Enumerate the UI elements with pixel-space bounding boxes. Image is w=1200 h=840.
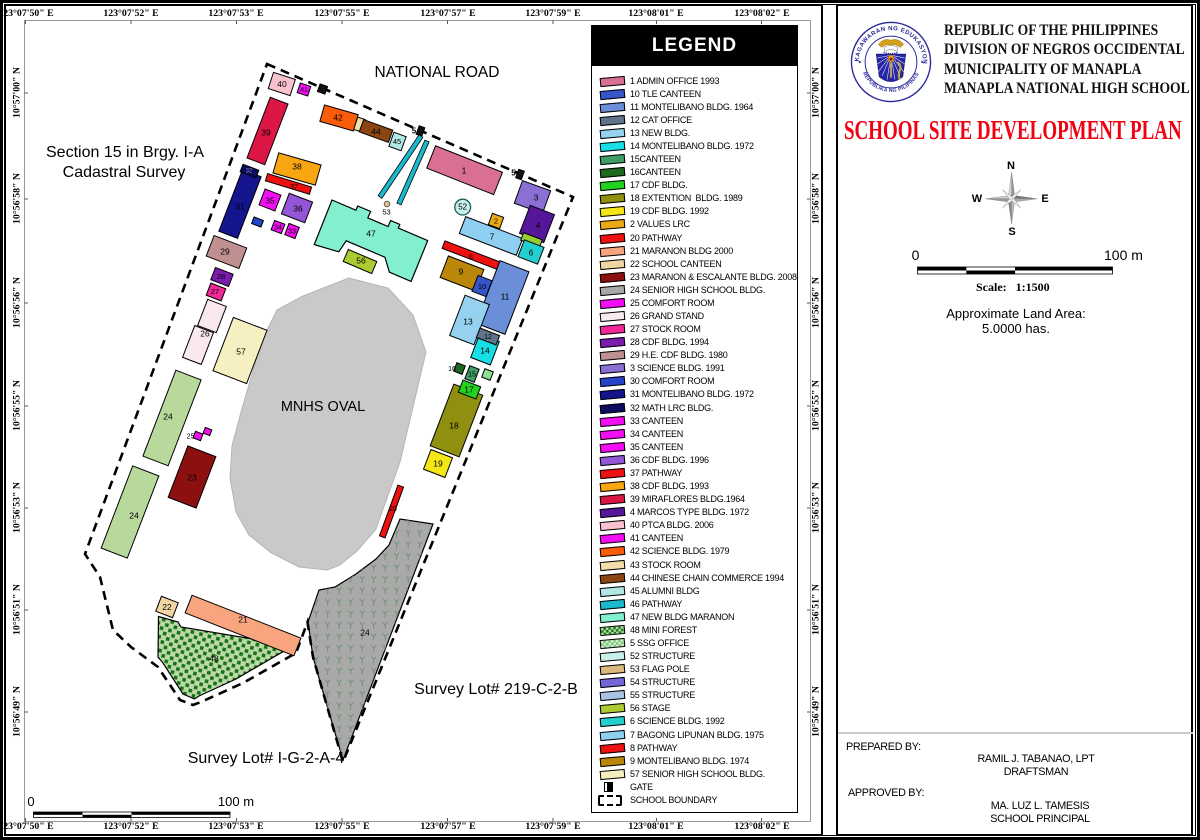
svg-text:MNHS OVAL: MNHS OVAL: [281, 399, 365, 415]
svg-text:27: 27: [211, 287, 219, 296]
svg-text:25: 25: [187, 433, 195, 440]
svg-text:16: 16: [448, 366, 456, 373]
svg-text:15: 15: [468, 371, 476, 378]
svg-text:10: 10: [478, 282, 486, 291]
svg-text:33: 33: [288, 228, 296, 235]
svg-text:53: 53: [382, 207, 390, 216]
svg-text:44: 44: [371, 126, 381, 136]
svg-text:24: 24: [360, 627, 370, 637]
svg-text:32: 32: [246, 169, 253, 175]
svg-text:41: 41: [300, 87, 308, 94]
svg-text:35: 35: [265, 195, 275, 205]
svg-text:18: 18: [449, 420, 459, 430]
svg-text:24: 24: [163, 411, 173, 421]
svg-text:29: 29: [220, 246, 230, 256]
svg-text:26: 26: [200, 328, 210, 338]
svg-text:6: 6: [529, 247, 534, 257]
svg-text:48: 48: [209, 653, 219, 663]
svg-text:4: 4: [536, 220, 541, 230]
svg-text:20: 20: [389, 506, 397, 513]
svg-text:39: 39: [261, 127, 271, 137]
svg-text:Cadastral Survey: Cadastral Survey: [63, 164, 186, 181]
svg-text:34: 34: [274, 224, 282, 231]
svg-text:Survey Lot# 219-C-2-B: Survey Lot# 219-C-2-B: [414, 681, 578, 698]
svg-text:1: 1: [462, 165, 467, 175]
svg-text:40: 40: [277, 79, 287, 89]
svg-text:37: 37: [290, 184, 298, 191]
svg-text:13: 13: [463, 316, 473, 326]
svg-text:31: 31: [235, 201, 245, 211]
svg-text:24: 24: [129, 510, 139, 520]
svg-text:9: 9: [459, 266, 464, 276]
svg-text:28: 28: [217, 272, 225, 281]
svg-text:52: 52: [458, 203, 467, 212]
svg-text:38: 38: [292, 161, 302, 171]
svg-text:11: 11: [501, 291, 510, 301]
svg-text:45: 45: [393, 137, 401, 146]
svg-text:14: 14: [480, 345, 490, 355]
svg-text:17: 17: [464, 384, 474, 394]
svg-text:NATIONAL ROAD: NATIONAL ROAD: [375, 64, 500, 81]
svg-text:3: 3: [534, 192, 539, 202]
svg-text:42: 42: [333, 112, 343, 122]
svg-text:0: 0: [912, 247, 920, 263]
svg-text:Survey Lot# I-G-2-A-4: Survey Lot# I-G-2-A-4: [188, 750, 345, 767]
svg-text:100 m: 100 m: [1104, 247, 1143, 263]
svg-text:21: 21: [238, 614, 248, 624]
svg-text:5: 5: [511, 169, 516, 178]
svg-text:8: 8: [469, 254, 473, 261]
svg-text:36: 36: [293, 203, 303, 213]
svg-text:Section 15 in Brgy. I-A: Section 15 in Brgy. I-A: [46, 144, 204, 161]
svg-text:22: 22: [162, 602, 172, 612]
svg-text:12: 12: [484, 334, 492, 341]
svg-text:47: 47: [366, 228, 376, 238]
svg-text:2: 2: [494, 216, 498, 225]
svg-text:100 m: 100 m: [218, 794, 254, 809]
svg-text:56: 56: [356, 255, 366, 265]
svg-text:0: 0: [27, 794, 34, 809]
svg-text:23: 23: [187, 472, 197, 482]
svg-text:19: 19: [433, 458, 443, 468]
svg-text:57: 57: [236, 346, 246, 356]
svg-text:7: 7: [490, 231, 495, 241]
